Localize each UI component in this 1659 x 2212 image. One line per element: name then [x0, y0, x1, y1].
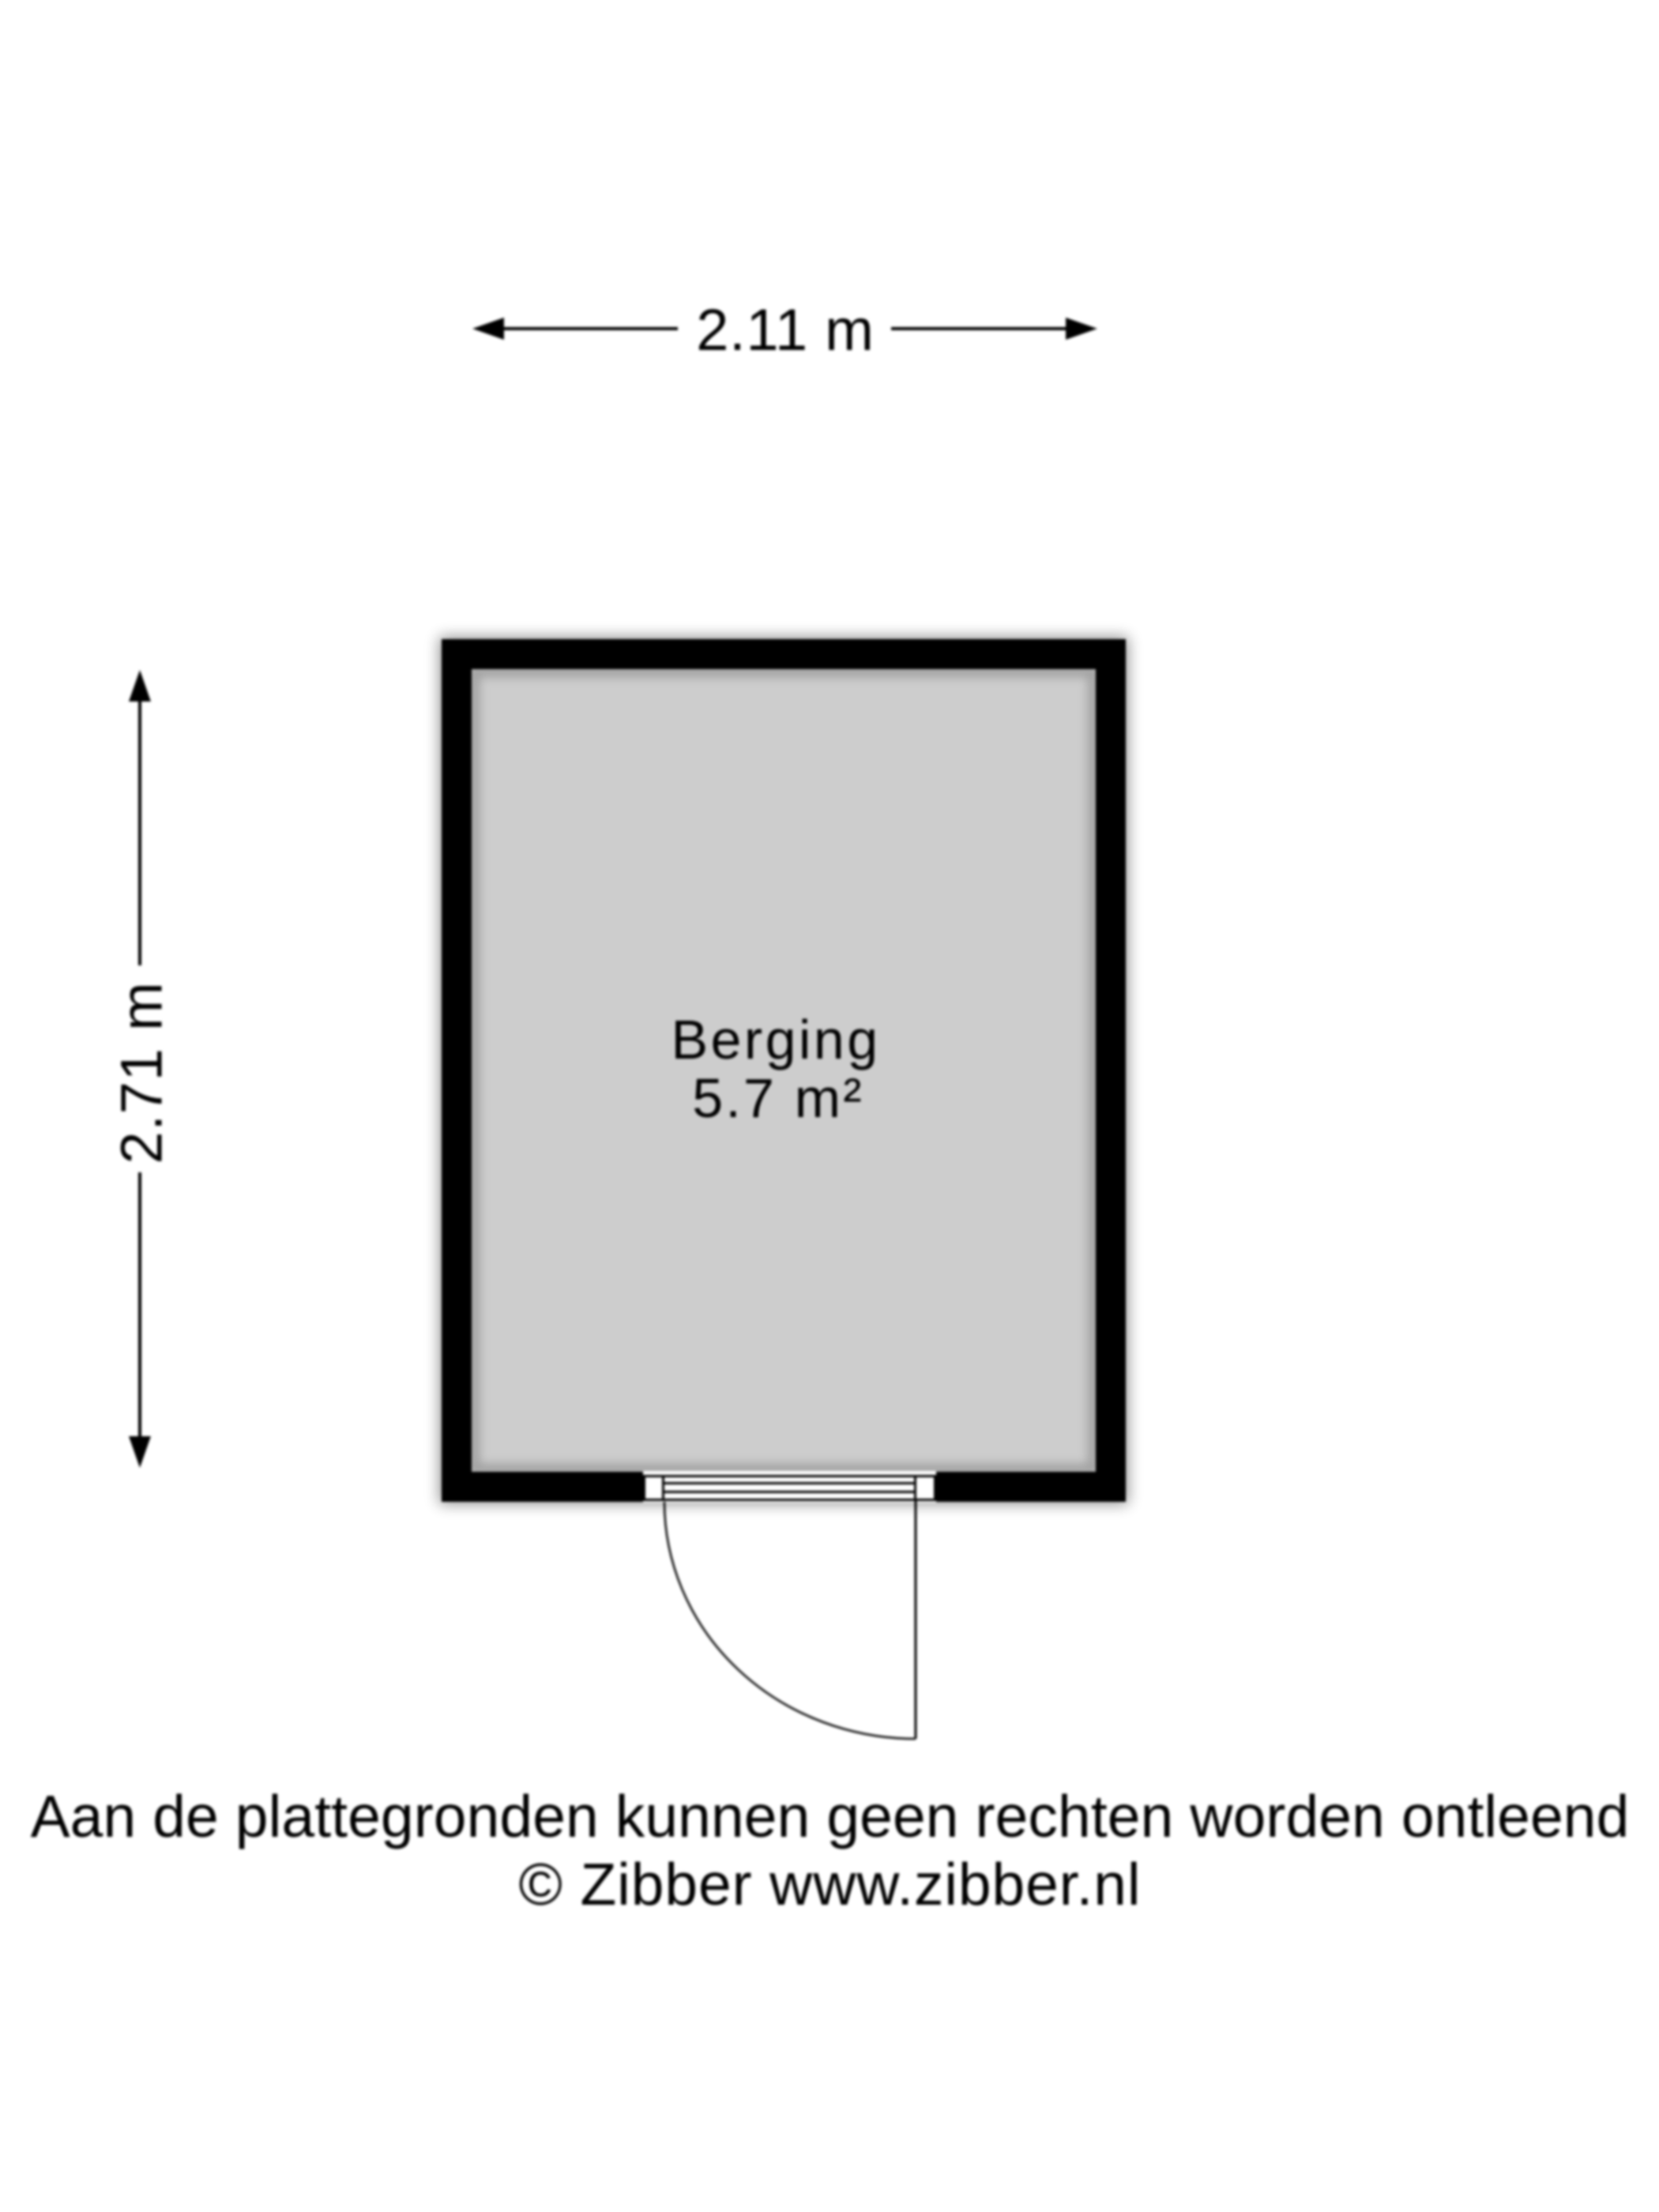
- svg-text:2.71 m: 2.71 m: [109, 981, 175, 1164]
- svg-text:2.11 m: 2.11 m: [696, 297, 875, 363]
- svg-text:Berging: Berging: [671, 1009, 880, 1070]
- svg-text:5.7 m²: 5.7 m²: [692, 1067, 864, 1129]
- svg-text:© Zibber www.zibber.nl: © Zibber www.zibber.nl: [519, 1851, 1142, 1917]
- svg-text:Aan de plattegronden kunnen ge: Aan de plattegronden kunnen geen rechten…: [31, 1783, 1630, 1849]
